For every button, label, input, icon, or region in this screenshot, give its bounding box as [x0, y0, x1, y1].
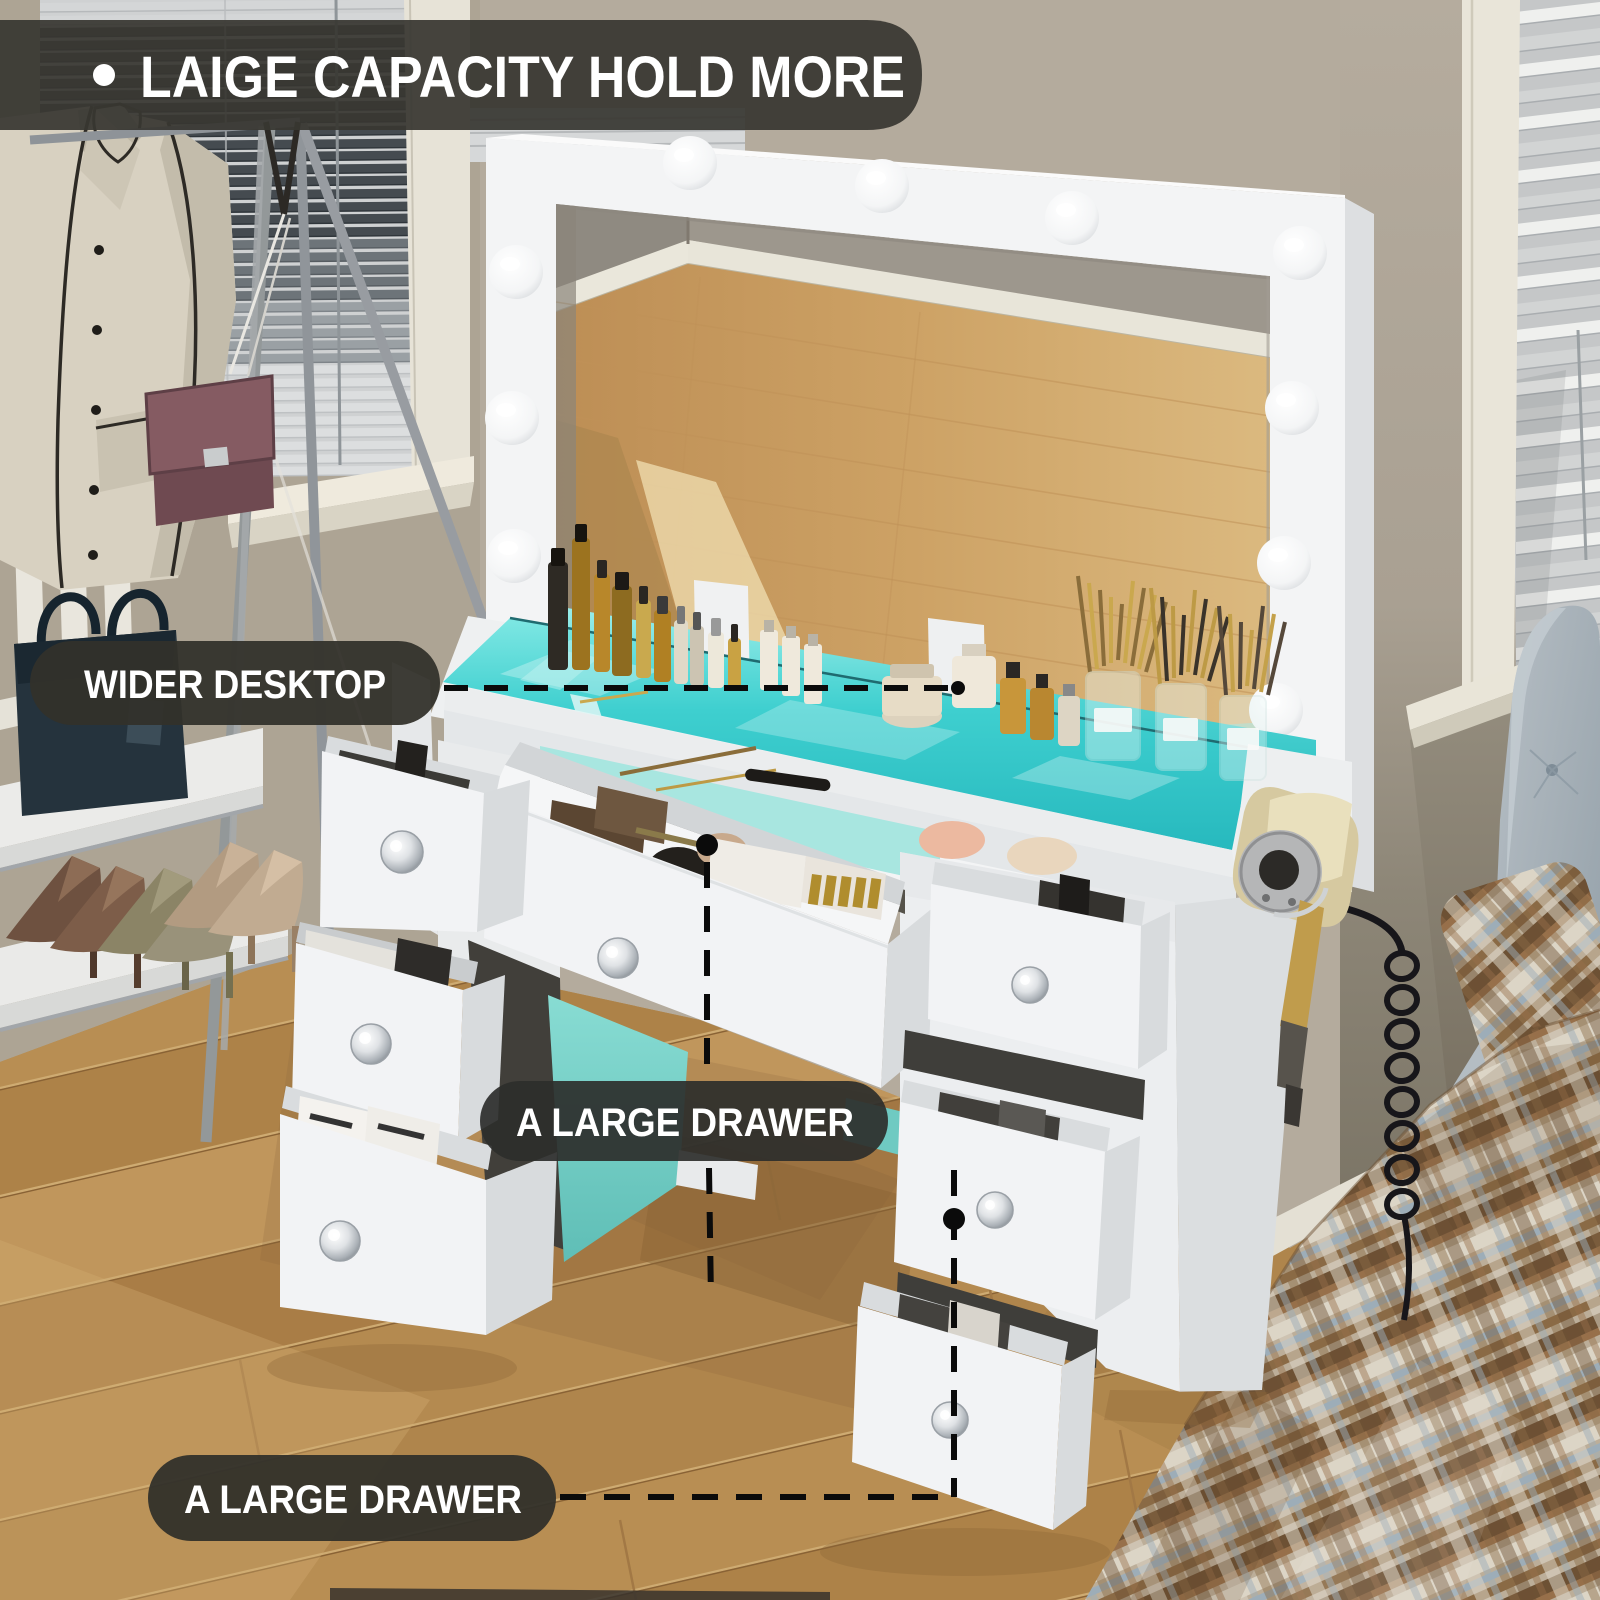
- svg-text:LAIGE CAPACITY HOLD MORE: LAIGE CAPACITY HOLD MORE: [140, 45, 905, 110]
- svg-text:WIDER DESKTOP: WIDER DESKTOP: [84, 663, 386, 707]
- svg-text:A LARGE DRAWER: A LARGE DRAWER: [516, 1101, 854, 1145]
- svg-text:A LARGE DRAWER: A LARGE DRAWER: [184, 1478, 522, 1522]
